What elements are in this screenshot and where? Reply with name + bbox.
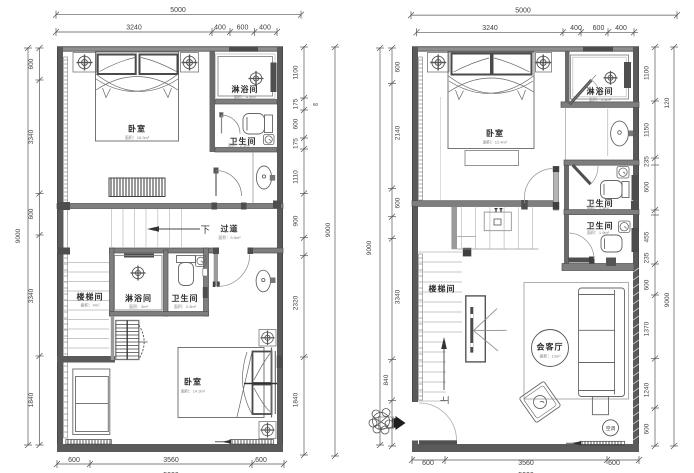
svg-text:面积：2.5m²: 面积：2.5m² xyxy=(174,303,197,309)
svg-text:5000: 5000 xyxy=(170,7,186,14)
svg-text:600: 600 xyxy=(255,457,267,464)
svg-text:600: 600 xyxy=(644,279,651,290)
svg-text:面积：3m²: 面积：3m² xyxy=(129,303,149,309)
svg-text:600: 600 xyxy=(68,457,80,464)
svg-text:60: 60 xyxy=(313,102,319,107)
svg-text:面积：14.3m²: 面积：14.3m² xyxy=(181,388,206,394)
svg-text:600: 600 xyxy=(644,181,651,192)
svg-text:面积：4.8m²: 面积：4.8m² xyxy=(234,94,257,100)
svg-text:空调: 空调 xyxy=(606,425,616,432)
svg-text:9000: 9000 xyxy=(664,292,671,307)
svg-text:9000: 9000 xyxy=(325,222,332,237)
svg-text:1150: 1150 xyxy=(644,123,651,137)
svg-text:面积：1.9m²: 面积：1.9m² xyxy=(587,229,610,235)
svg-text:600: 600 xyxy=(28,208,35,219)
svg-text:3560: 3560 xyxy=(163,457,179,464)
svg-text:600: 600 xyxy=(644,423,651,434)
svg-text:1100: 1100 xyxy=(293,65,300,79)
svg-text:1110: 1110 xyxy=(293,170,300,184)
svg-text:400: 400 xyxy=(570,25,582,32)
svg-text:楼梯间: 楼梯间 xyxy=(429,284,456,294)
svg-text:400: 400 xyxy=(259,25,271,32)
svg-text:淋浴间: 淋浴间 xyxy=(125,293,152,303)
svg-text:175: 175 xyxy=(293,98,300,109)
svg-text:1840: 1840 xyxy=(293,392,300,407)
svg-text:面积：1.9m²: 面积：1.9m² xyxy=(587,204,610,210)
svg-text:会客厅: 会客厅 xyxy=(537,342,564,352)
svg-text:面积：16.3m²: 面积：16.3m² xyxy=(125,134,150,140)
svg-text:2320: 2320 xyxy=(293,295,300,310)
svg-text:3340: 3340 xyxy=(395,289,402,304)
svg-text:455: 455 xyxy=(644,231,651,242)
svg-text:1240: 1240 xyxy=(644,382,651,397)
svg-text:3240: 3240 xyxy=(482,25,498,32)
svg-text:卫生间: 卫生间 xyxy=(172,293,199,303)
svg-text:5000: 5000 xyxy=(515,7,531,14)
svg-text:1840: 1840 xyxy=(28,392,35,407)
svg-text:1370: 1370 xyxy=(644,321,651,336)
svg-text:2140: 2140 xyxy=(395,125,402,140)
svg-text:400: 400 xyxy=(214,25,226,32)
svg-text:600: 600 xyxy=(422,460,434,467)
svg-text:600: 600 xyxy=(593,25,605,32)
svg-text:235: 235 xyxy=(644,252,651,263)
svg-text:楼梯间: 楼梯间 xyxy=(77,292,104,302)
svg-text:600: 600 xyxy=(395,61,402,72)
svg-text:上: 上 xyxy=(440,395,450,404)
svg-text:淋浴间: 淋浴间 xyxy=(232,84,259,94)
svg-text:600: 600 xyxy=(293,118,300,129)
svg-text:卧室: 卧室 xyxy=(128,124,146,134)
svg-text:175: 175 xyxy=(293,138,300,149)
svg-text:600: 600 xyxy=(28,58,35,69)
svg-text:600: 600 xyxy=(608,460,620,467)
svg-text:下: 下 xyxy=(201,225,211,236)
svg-text:600: 600 xyxy=(395,197,402,208)
svg-text:面积：4m²: 面积：4m² xyxy=(81,302,101,308)
svg-text:120: 120 xyxy=(664,97,671,108)
svg-text:1100: 1100 xyxy=(644,66,651,80)
svg-text:840: 840 xyxy=(383,374,390,385)
svg-text:卧室: 卧室 xyxy=(486,128,504,138)
svg-text:过道: 过道 xyxy=(221,224,239,234)
svg-text:面积：12.4m²: 面积：12.4m² xyxy=(483,139,508,145)
svg-text:面积：13m²: 面积：13m² xyxy=(539,353,561,359)
svg-text:卧室: 卧室 xyxy=(184,377,202,387)
svg-text:面积：2.6m²: 面积：2.6m² xyxy=(589,96,612,102)
svg-text:3240: 3240 xyxy=(126,25,142,32)
svg-text:3560: 3560 xyxy=(518,460,534,467)
svg-text:3340: 3340 xyxy=(28,129,35,144)
svg-text:9000: 9000 xyxy=(15,228,22,243)
svg-text:面积：2.1m²: 面积：2.1m² xyxy=(228,142,251,148)
svg-text:淋浴间: 淋浴间 xyxy=(587,86,614,96)
svg-text:面积：9.5m²: 面积：9.5m² xyxy=(218,234,241,240)
svg-text:235: 235 xyxy=(644,156,651,167)
svg-text:3340: 3340 xyxy=(28,288,35,303)
svg-text:900: 900 xyxy=(293,215,300,226)
svg-text:9000: 9000 xyxy=(366,240,373,255)
svg-text:600: 600 xyxy=(237,25,249,32)
svg-text:400: 400 xyxy=(615,25,627,32)
